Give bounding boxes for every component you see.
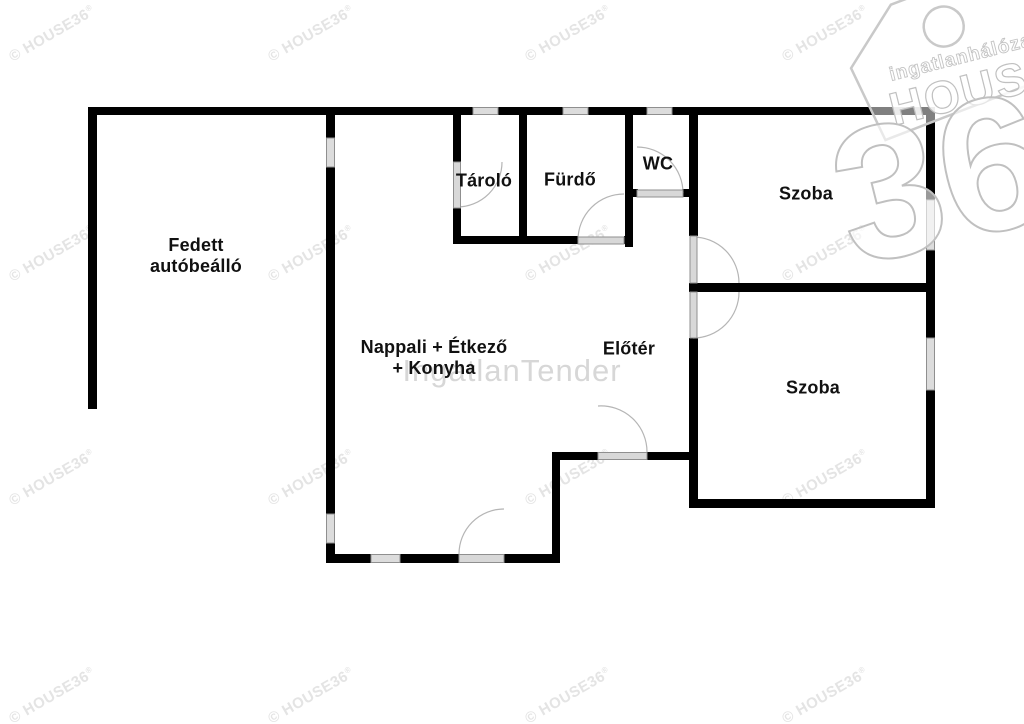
logo-number-text: 36 [812, 50, 1024, 307]
house36-logo: ingatlanhálózat HOUSE 36 [812, 0, 1024, 307]
room-label-bedroom-1: Szoba [779, 184, 833, 205]
room-label-storage: Tároló [456, 171, 512, 192]
room-label-carport: Fedett autóbeálló [150, 235, 242, 277]
room-label-bathroom: Fürdő [544, 170, 596, 191]
room-label-wc: WC [643, 154, 673, 175]
room-label-bedroom-2: Szoba [786, 378, 840, 399]
floor-plan-drawing: ingatlanhálózat HOUSE 36 [0, 0, 1024, 724]
room-label-living-kitchen: Nappali + Étkező + Konyha [361, 337, 508, 379]
floor-plan-page: © HOUSE36®© HOUSE36®© HOUSE36®© HOUSE36®… [0, 0, 1024, 724]
room-label-hallway: Előtér [603, 339, 655, 360]
